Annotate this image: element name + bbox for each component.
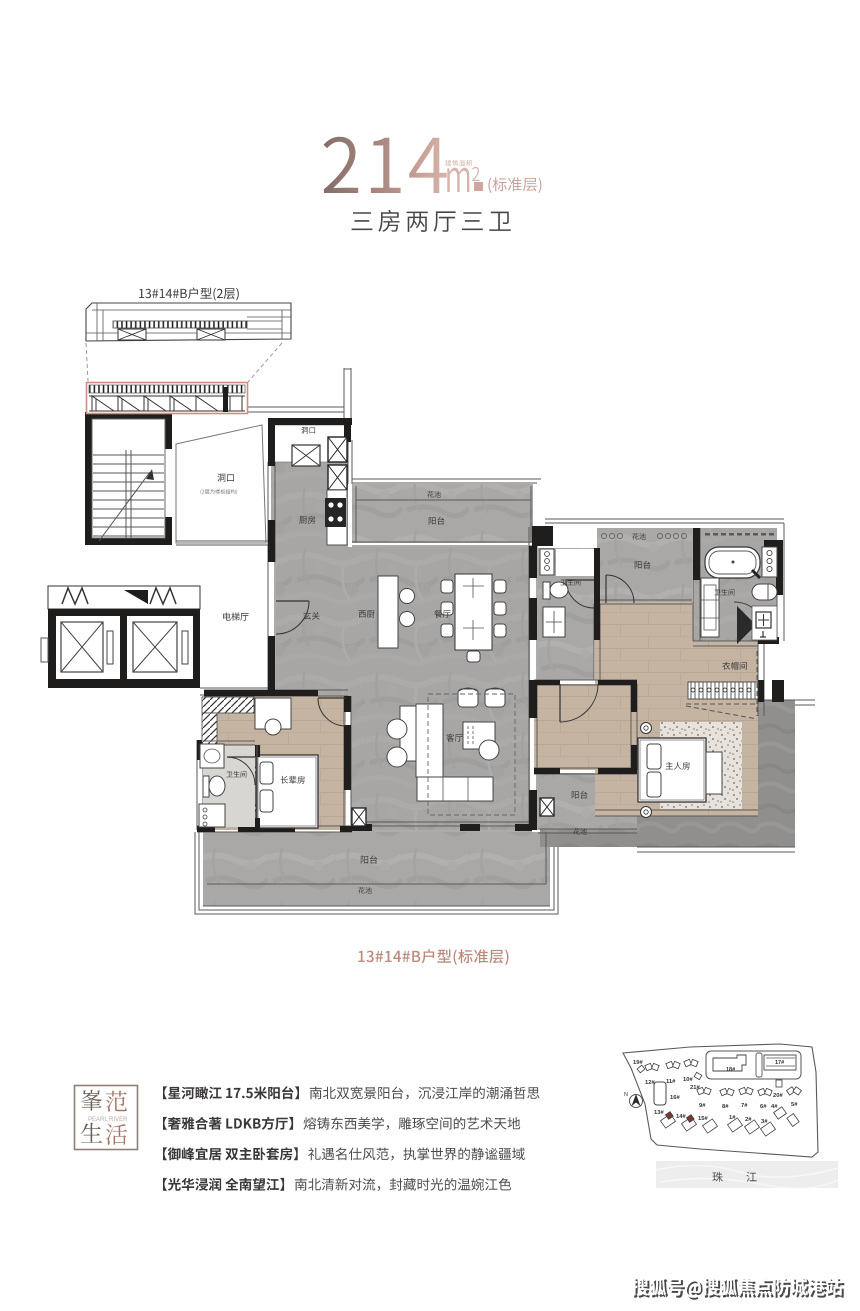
svg-text:13#: 13# bbox=[654, 1110, 664, 1116]
svg-text:21#: 21# bbox=[690, 1085, 700, 1091]
svg-text:4#: 4# bbox=[771, 1104, 778, 1110]
svg-text:12#: 12# bbox=[645, 1080, 655, 1086]
svg-text:3#: 3# bbox=[761, 1119, 768, 1125]
svg-text:1#: 1# bbox=[729, 1115, 736, 1121]
svg-text:6#: 6# bbox=[760, 1104, 767, 1110]
svg-text:18#: 18# bbox=[726, 1067, 735, 1073]
svg-text:17#: 17# bbox=[775, 1060, 784, 1066]
svg-text:16#: 16# bbox=[670, 1095, 680, 1101]
svg-text:10#: 10# bbox=[683, 1077, 693, 1083]
svg-text:7#: 7# bbox=[741, 1103, 748, 1109]
svg-text:2#: 2# bbox=[745, 1117, 752, 1123]
svg-text:15#: 15# bbox=[698, 1116, 708, 1122]
svg-text:9#: 9# bbox=[699, 1103, 706, 1109]
svg-text:N: N bbox=[624, 1092, 628, 1098]
svg-text:14#: 14# bbox=[676, 1114, 686, 1120]
svg-text:19#: 19# bbox=[633, 1060, 643, 1066]
svg-text:11#: 11# bbox=[666, 1079, 676, 1085]
svg-text:20#: 20# bbox=[773, 1093, 783, 1099]
svg-text:5#: 5# bbox=[791, 1102, 798, 1108]
svg-text:8#: 8# bbox=[722, 1104, 729, 1110]
svg-text:PEARL RIVER: PEARL RIVER bbox=[88, 1117, 128, 1123]
